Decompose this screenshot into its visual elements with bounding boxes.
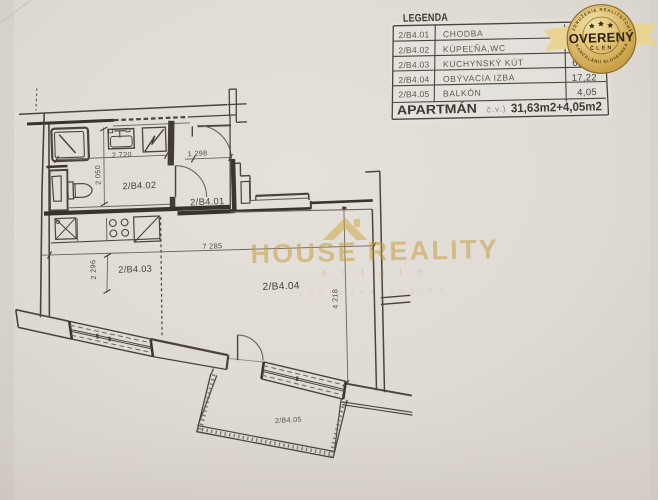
svg-text:2/B4.04: 2/B4.04 — [262, 281, 300, 293]
svg-text:2/B4.01: 2/B4.01 — [190, 195, 225, 207]
svg-text:2/B4.03: 2/B4.03 — [398, 59, 429, 70]
svg-text:APARTMÁN: APARTMÁN — [397, 101, 477, 118]
svg-text:LEGENDA: LEGENDA — [403, 12, 448, 25]
svg-text:č.v.): č.v.) — [487, 104, 507, 114]
svg-text:2 050: 2 050 — [93, 165, 103, 185]
svg-text:BALKÓN: BALKÓN — [443, 88, 482, 99]
svg-text:2/B4.03: 2/B4.03 — [118, 264, 152, 275]
svg-text:CHODBA: CHODBA — [443, 28, 484, 39]
svg-text:7 285: 7 285 — [202, 241, 222, 251]
svg-text:2/B4.02: 2/B4.02 — [122, 180, 156, 191]
svg-text:2/B4.02: 2/B4.02 — [398, 45, 429, 56]
svg-text:2 296: 2 296 — [88, 259, 98, 279]
svg-text:2/B4.05: 2/B4.05 — [275, 415, 302, 425]
svg-text:1 298: 1 298 — [187, 148, 207, 158]
svg-text:HOUSE REALITY: HOUSE REALITY — [250, 234, 499, 269]
svg-text:2/B4.04: 2/B4.04 — [398, 74, 429, 85]
svg-text:ČLEN: ČLEN — [590, 44, 614, 52]
svg-text:KÚPEĽŇA,WC: KÚPEĽŇA,WC — [443, 43, 506, 54]
svg-text:e s t a t e: e s t a t e — [321, 266, 428, 279]
svg-text:2/B4.05: 2/B4.05 — [398, 89, 429, 100]
svg-text:17,22: 17,22 — [572, 72, 598, 84]
svg-text:31,63m2+4,05m2: 31,63m2+4,05m2 — [511, 99, 602, 115]
svg-text:2 720: 2 720 — [112, 150, 132, 160]
svg-text:2/B4.01: 2/B4.01 — [398, 29, 429, 40]
svg-text:KUCHYNSKÝ KÚT: KUCHYNSKÝ KÚT — [443, 57, 524, 69]
svg-text:4,05: 4,05 — [577, 87, 597, 98]
svg-text:OBÝVACIA IZBA: OBÝVACIA IZBA — [443, 72, 515, 84]
svg-text:OVERENÝ: OVERENÝ — [568, 29, 634, 46]
